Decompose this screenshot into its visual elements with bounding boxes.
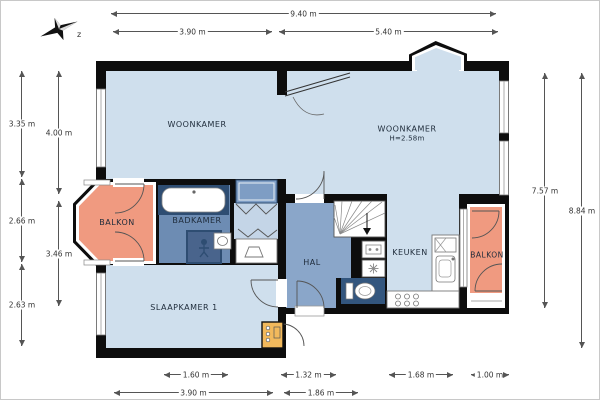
dim-label: 8.84 m: [567, 206, 597, 215]
floorplan-canvas: WOONKAMER WOONKAMER H=2.58m BALKON BADKA…: [0, 0, 600, 400]
label-woonkamer-left: WOONKAMER: [167, 120, 226, 130]
dim-label: 3.46 m: [44, 249, 74, 258]
dim-bottom-4: 1.00 m: [471, 374, 509, 375]
label-badkamer: BADKAMER: [172, 216, 221, 226]
dim-left-2: 2.66 m: [21, 179, 22, 262]
dim-label: 9.40 m: [288, 10, 318, 19]
dim-label: 1.86 m: [306, 389, 336, 398]
dim-bottom-1: 1.60 m: [164, 374, 228, 375]
dim-left-1: 3.35 m: [21, 71, 22, 177]
dim-bottom-6: 1.86 m: [284, 392, 358, 393]
dim-left-inner-1: 4.00 m: [58, 71, 59, 194]
dim-top-right: 5.40 m: [279, 31, 498, 32]
dim-label: 3.35 m: [7, 120, 37, 129]
dim-left-3: 2.63 m: [21, 264, 22, 346]
label-slaapkamer: SLAAPKAMER 1: [150, 303, 217, 313]
dim-bottom-2: 1.32 m: [281, 374, 336, 375]
label-balkon-left: BALKON: [99, 218, 135, 228]
dim-label: 1.60 m: [181, 371, 211, 380]
dim-label: 1.68 m: [406, 371, 436, 380]
dim-left-inner-2: 3.46 m: [58, 201, 59, 306]
label-ceiling-height: H=2.58m: [377, 135, 436, 144]
dim-label: 1.00 m: [475, 371, 505, 380]
dim-label: 3.90 m: [178, 389, 208, 398]
dim-top-total: 9.40 m: [111, 13, 496, 14]
dim-right-outer: 8.84 m: [581, 73, 582, 348]
label-balkon-right: BALKON: [470, 250, 503, 259]
room-keuken: [387, 194, 459, 293]
compass-label: z: [77, 30, 81, 39]
wall-partition-stub: [277, 61, 287, 95]
dim-label: 5.40 m: [373, 28, 403, 37]
room-hal-extension: [336, 237, 351, 278]
label-woonkamer-right: WOONKAMER H=2.58m: [377, 125, 436, 144]
dim-top-left: 3.90 m: [113, 31, 272, 32]
compass-rose-icon: [36, 10, 82, 47]
dim-label: 3.90 m: [177, 28, 207, 37]
closet-passage: [234, 203, 278, 239]
label-woonkamer-right-main: WOONKAMER: [377, 125, 436, 134]
dim-right-inner: 7.57 m: [544, 73, 545, 308]
dim-label: 4.00 m: [44, 128, 74, 137]
dim-bottom-5: 3.90 m: [114, 392, 273, 393]
dim-label: 2.66 m: [7, 216, 37, 225]
dim-label: 1.32 m: [293, 371, 323, 380]
dim-label: 2.63 m: [7, 301, 37, 310]
dim-bottom-3: 1.68 m: [389, 374, 453, 375]
room-hal: [286, 203, 336, 308]
label-keuken: KEUKEN: [392, 248, 427, 258]
dim-label: 7.57 m: [530, 186, 560, 195]
label-hal: HAL: [303, 258, 320, 268]
